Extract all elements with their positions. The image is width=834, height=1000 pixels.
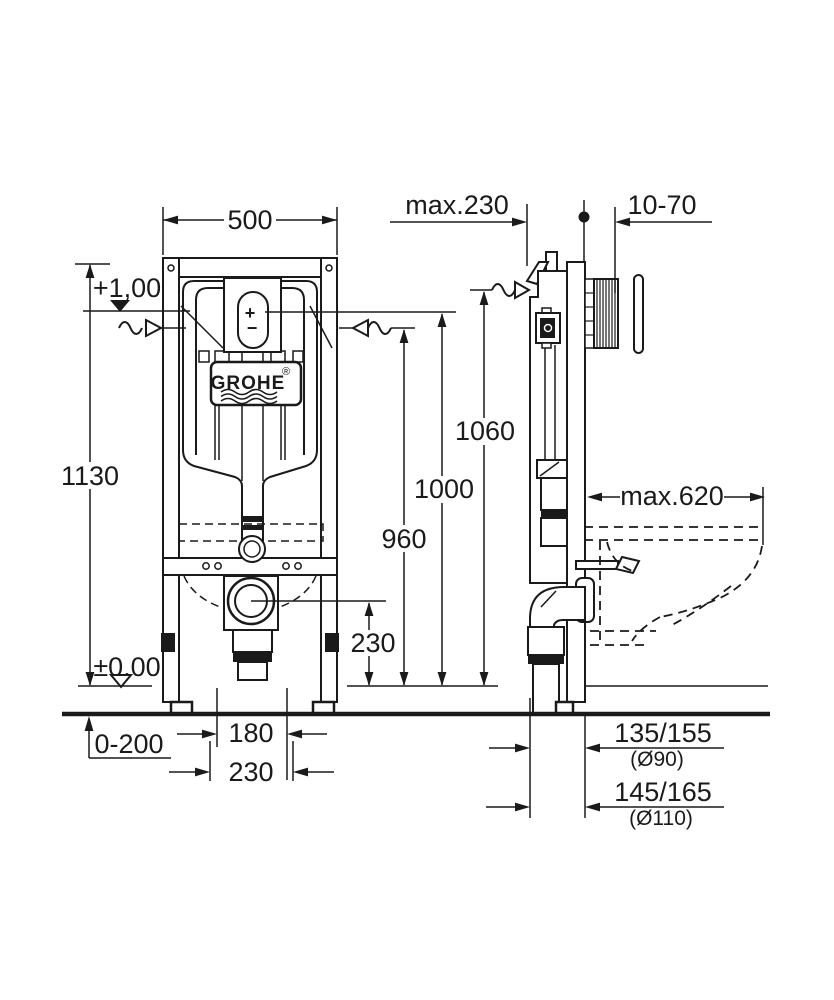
- flush-bend-connector: [239, 536, 265, 562]
- dim-bowl-depth: max.620: [587, 481, 765, 545]
- mounting-rod-end: [616, 557, 639, 573]
- drain-seal-band: [528, 655, 564, 664]
- bolt-icon: [295, 563, 301, 569]
- rail-clamp: [161, 633, 175, 652]
- screw-hole-icon: [326, 265, 332, 271]
- drain-stub: [238, 662, 267, 680]
- frame-back-rail: [567, 262, 585, 702]
- rail-clamp: [325, 633, 339, 652]
- dim-label-180: 180: [228, 718, 273, 748]
- screw-hole-icon: [168, 265, 174, 271]
- installation-frame-drawing: + − GROHE ®: [0, 0, 834, 1000]
- drain-seal-band: [233, 652, 272, 662]
- bowl-outline-dashed-left: [184, 576, 226, 609]
- dim-label-dia90: (Ø90): [630, 748, 684, 771]
- dim-label-1060: 1060: [455, 416, 515, 446]
- dim-label-230: 230: [350, 628, 395, 658]
- grohe-logo-plate: GROHE ®: [211, 362, 301, 405]
- dim-drain-offsets: 135/155 (Ø90) 145/165 (Ø110): [486, 698, 724, 830]
- dim-floor-buildup: 0-200: [85, 716, 171, 759]
- dim-outlet-height: 230: [346, 602, 400, 686]
- technical-drawing-page: + − GROHE ®: [0, 0, 834, 1000]
- actuator-minus-label: −: [247, 318, 258, 338]
- bowl-outline-dashed-right: [274, 576, 316, 609]
- dim-label-0-200: 0-200: [94, 729, 163, 759]
- dim-label-135-155: 135/155: [614, 718, 712, 748]
- sleeve-collar: [585, 279, 594, 348]
- dim-label-dia110: (Ø110): [629, 807, 693, 830]
- mounting-rod: [576, 561, 618, 569]
- side-view: [527, 200, 763, 714]
- dim-label-145-165: 145/165: [614, 777, 712, 807]
- bolt-icon: [215, 563, 221, 569]
- level-marker-icon: [110, 300, 130, 312]
- water-supply-arrow-side: [470, 282, 529, 298]
- dim-label-1130: 1130: [61, 461, 119, 491]
- dim-wall-clearance: 10-70: [615, 190, 712, 293]
- bolt-icon: [203, 563, 209, 569]
- wc-bowl-dashed-outline: [584, 527, 763, 646]
- level-plus-label: +1,00: [93, 273, 161, 303]
- frame-top-bar: [163, 258, 337, 277]
- dim-height-1000: 1000: [413, 313, 475, 686]
- dim-label-1000: 1000: [414, 474, 474, 504]
- dim-label-max620: max.620: [620, 481, 724, 511]
- actuation-plate-side: [634, 275, 643, 353]
- dim-label-960: 960: [381, 524, 426, 554]
- registered-mark: ®: [282, 366, 290, 378]
- dim-label-500: 500: [227, 205, 272, 235]
- reference-point-dot: [579, 212, 590, 223]
- dim-total-height: 1130: [59, 264, 121, 686]
- dim-label-230b: 230: [228, 757, 273, 787]
- dim-frame-width: 500: [163, 205, 337, 255]
- bolt-icon: [283, 563, 289, 569]
- dim-label-max230: max.230: [405, 190, 509, 220]
- drain-stem: [233, 630, 272, 652]
- dim-install-depth: max.230: [390, 190, 527, 266]
- dim-label-10-70: 10-70: [627, 190, 696, 220]
